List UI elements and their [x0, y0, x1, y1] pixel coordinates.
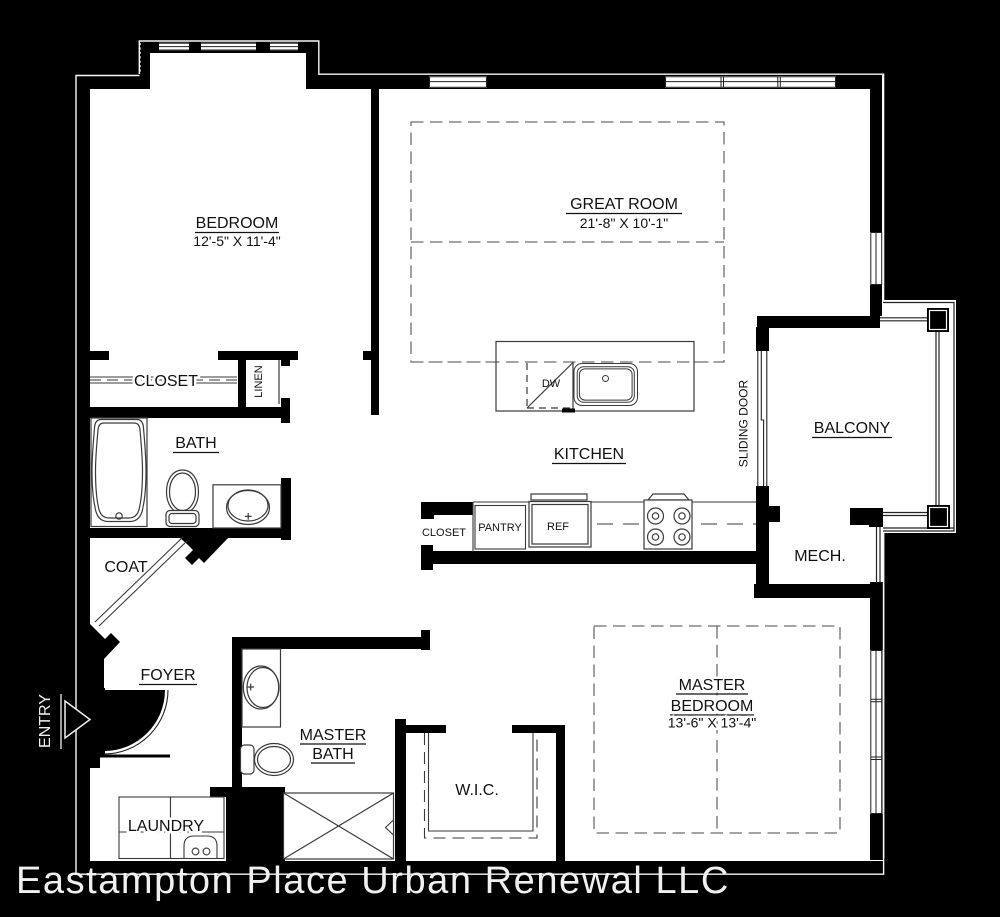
svg-text:KITCHEN: KITCHEN [554, 446, 624, 463]
svg-text:DW: DW [542, 378, 561, 390]
svg-text:13'-6" X 13'-4": 13'-6" X 13'-4" [668, 715, 756, 731]
svg-text:MECH.: MECH. [794, 548, 846, 565]
svg-text:CLOSET: CLOSET [134, 373, 198, 390]
svg-text:12'-5" X 11'-4": 12'-5" X 11'-4" [193, 233, 280, 249]
svg-text:FOYER: FOYER [140, 667, 195, 684]
svg-text:Eastampton Place Urban Renewal: Eastampton Place Urban Renewal LLC [16, 860, 730, 902]
svg-text:LAUNDRY: LAUNDRY [128, 818, 205, 835]
svg-text:COAT: COAT [104, 559, 147, 576]
svg-text:BEDROOM: BEDROOM [196, 215, 279, 232]
svg-text:SLIDING DOOR: SLIDING DOOR [737, 380, 751, 468]
svg-text:GREAT ROOM: GREAT ROOM [570, 196, 678, 213]
svg-text:PANTRY: PANTRY [478, 522, 522, 534]
svg-text:BEDROOM: BEDROOM [671, 698, 754, 715]
svg-text:BATH: BATH [312, 746, 353, 763]
svg-text:BATH: BATH [175, 435, 216, 452]
svg-text:BALCONY: BALCONY [814, 420, 891, 437]
svg-text:ENTRY: ENTRY [37, 694, 54, 748]
svg-text:MASTER: MASTER [300, 727, 367, 744]
svg-text:MASTER: MASTER [679, 677, 746, 694]
svg-text:W.I.C.: W.I.C. [455, 782, 499, 799]
svg-text:LINEN: LINEN [253, 365, 265, 397]
svg-text:REF: REF [547, 521, 569, 533]
svg-text:21'-8" X 10'-1": 21'-8" X 10'-1" [580, 215, 668, 231]
svg-text:CLOSET: CLOSET [422, 527, 466, 539]
